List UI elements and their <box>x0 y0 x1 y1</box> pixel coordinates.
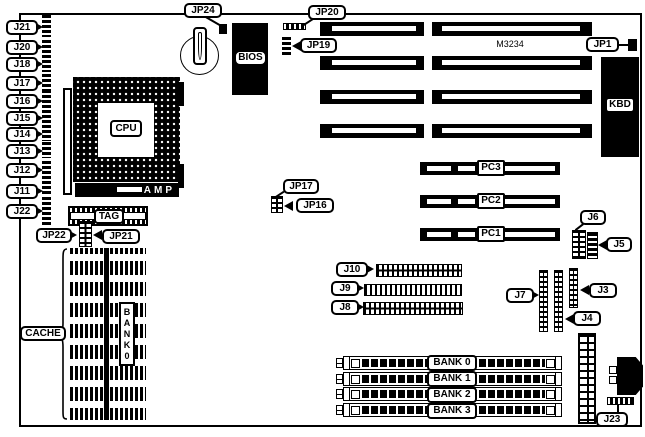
simm-label-bank0: BANK 0 <box>427 355 477 371</box>
callout-jp22: JP22 <box>36 228 72 243</box>
isa-slot-contact <box>442 26 580 31</box>
pci-slot-contact <box>458 199 475 204</box>
chipset-text: M3234 <box>488 39 532 49</box>
cpu-label: CPU <box>110 120 142 137</box>
isa-slot-4-left <box>320 124 424 138</box>
jumper-block-j21 <box>42 15 51 37</box>
callout-j22: J22 <box>6 204 38 219</box>
callout-j6: J6 <box>580 210 606 225</box>
pci-label-pc1: PC1 <box>477 226 505 242</box>
simm-cap <box>555 404 561 416</box>
simm-end-tab <box>336 358 343 368</box>
callout-jp20: JP20 <box>308 5 346 20</box>
simm-label-bank2: BANK 2 <box>427 387 477 403</box>
isa-slot-4-right <box>432 124 592 138</box>
simm-cap <box>344 404 350 416</box>
callout-j15: J15 <box>6 111 38 126</box>
jumper-block-jp24 <box>219 24 227 34</box>
jumper-block-j18 <box>42 55 51 72</box>
pointer-jp21 <box>93 230 102 240</box>
simm-cap <box>555 373 561 385</box>
battery-clip <box>193 27 207 65</box>
callout-jp1: JP1 <box>586 37 619 52</box>
callout-j23: J23 <box>596 412 628 427</box>
simm-latch <box>351 406 360 415</box>
callout-j11: J11 <box>6 184 38 199</box>
simm-latch <box>351 375 360 384</box>
header-j10 <box>376 264 462 277</box>
tag-label: TAG <box>94 209 124 224</box>
simm-latch <box>351 359 360 368</box>
simm-label-bank3: BANK 3 <box>427 403 477 419</box>
power-connector <box>578 333 596 424</box>
callout-j4: J4 <box>573 311 601 326</box>
pci-slot-contact <box>427 199 451 204</box>
simm-label-bank1: BANK 1 <box>427 371 477 387</box>
isa-slot-2-right <box>432 56 592 70</box>
pointer-jp16 <box>284 201 293 211</box>
jumper-block-j15 <box>42 110 51 124</box>
pci-label-pc2: PC2 <box>477 193 505 209</box>
callout-j21: J21 <box>6 20 38 35</box>
pci-slot-contact <box>505 232 555 237</box>
pci-slot-contact <box>458 232 475 237</box>
motherboard-diagram: J21 J20 J18 J17 J16 J15 J14 J13 J12 J11 … <box>0 0 645 437</box>
callout-j10: J10 <box>336 262 368 277</box>
bios-label: BIOS <box>234 50 267 66</box>
bank0-letter: N <box>124 329 131 340</box>
simm-latch <box>546 406 555 415</box>
pci-slot-contact <box>458 166 475 171</box>
jumper-block-jp22-jp21 <box>79 221 92 247</box>
bank0-letter: A <box>124 318 131 329</box>
callout-j12: J12 <box>6 163 38 178</box>
socket-lever <box>63 88 72 195</box>
callout-j8: J8 <box>331 300 359 315</box>
jumper-block-j11 <box>42 181 51 195</box>
header-j4 <box>554 270 563 332</box>
isa-slot-1-right <box>432 22 592 36</box>
simm-latch <box>546 390 555 399</box>
isa-slot-contact <box>332 60 416 65</box>
connector-j6 <box>572 230 586 259</box>
simm-cap <box>555 388 561 400</box>
pci-slot-contact <box>427 232 451 237</box>
header-j8 <box>363 302 463 315</box>
callout-j13: J13 <box>6 144 38 159</box>
external-port <box>617 357 643 395</box>
port-pin <box>609 376 617 384</box>
amp-bar-window <box>117 187 142 192</box>
port-pin <box>609 366 617 374</box>
jumper-block-j16 <box>42 90 51 110</box>
callout-j20: J20 <box>6 40 38 55</box>
isa-slot-2-left <box>320 56 424 70</box>
callout-j16: J16 <box>6 94 38 109</box>
header-j7 <box>539 270 548 332</box>
simm-cap <box>555 357 561 369</box>
header-j9 <box>364 284 462 296</box>
simm-cap <box>344 388 350 400</box>
callout-jp21: JP21 <box>102 229 140 244</box>
jumper-block-j23 <box>607 397 634 405</box>
bank0-letter: B <box>124 307 131 318</box>
simm-latch <box>351 390 360 399</box>
callout-jp17: JP17 <box>283 179 319 194</box>
pointer-jp1 <box>618 44 628 46</box>
simm-cap <box>344 357 350 369</box>
callout-jp24: JP24 <box>184 3 222 18</box>
jumper-block-j14 <box>42 125 51 141</box>
isa-slot-contact <box>442 60 580 65</box>
pointer-j3 <box>580 285 589 295</box>
callout-j9: J9 <box>331 281 359 296</box>
pci-slot-contact <box>427 166 451 171</box>
simm-latch <box>546 359 555 368</box>
simm-end-tab <box>336 389 343 399</box>
header-j3 <box>569 268 578 308</box>
simm-end-tab <box>336 374 343 384</box>
socket-tab-top <box>178 82 184 106</box>
battery-clip-pin <box>198 32 202 60</box>
bank0-letter: K <box>124 340 131 351</box>
callout-j17: J17 <box>6 76 38 91</box>
kbd-label: KBD <box>605 97 635 113</box>
simm-latch <box>546 375 555 384</box>
bank0-letter: 0 <box>124 351 129 362</box>
cache-bank0-label: B A N K 0 <box>119 302 135 366</box>
isa-slot-contact <box>442 94 580 99</box>
isa-slot-contact <box>442 128 580 133</box>
isa-slot-1-left <box>320 22 424 36</box>
connector-j5 <box>587 232 598 259</box>
jumper-block-jp17-jp16 <box>271 196 283 213</box>
pci-label-pc3: PC3 <box>477 160 505 176</box>
jumper-block-j13 <box>42 142 51 158</box>
amp-label: AMP <box>144 185 175 196</box>
jumper-block-jp19 <box>282 37 291 55</box>
isa-slot-contact <box>332 26 416 31</box>
isa-slot-3-right <box>432 90 592 104</box>
isa-slot-contact <box>332 128 416 133</box>
jumper-block-j12 <box>42 161 51 179</box>
jumper-block-j22 <box>42 197 51 227</box>
pci-slot-contact <box>505 199 555 204</box>
callout-jp19: JP19 <box>300 38 337 53</box>
amp-regulator-bar: AMP <box>75 183 179 197</box>
callout-j14: J14 <box>6 127 38 142</box>
jumper-block-jp1 <box>628 39 637 51</box>
callout-j7: J7 <box>506 288 534 303</box>
isa-slot-contact <box>332 94 416 99</box>
pci-slot-contact <box>505 166 555 171</box>
cache-label: CACHE <box>20 326 66 341</box>
simm-cap <box>344 373 350 385</box>
jumper-block-j17 <box>42 74 51 90</box>
callout-j3: J3 <box>589 283 617 298</box>
callout-j5: J5 <box>606 237 632 252</box>
isa-slot-3-left <box>320 90 424 104</box>
callout-j18: J18 <box>6 57 38 72</box>
callout-jp16: JP16 <box>296 198 334 213</box>
simm-end-tab <box>336 405 343 415</box>
